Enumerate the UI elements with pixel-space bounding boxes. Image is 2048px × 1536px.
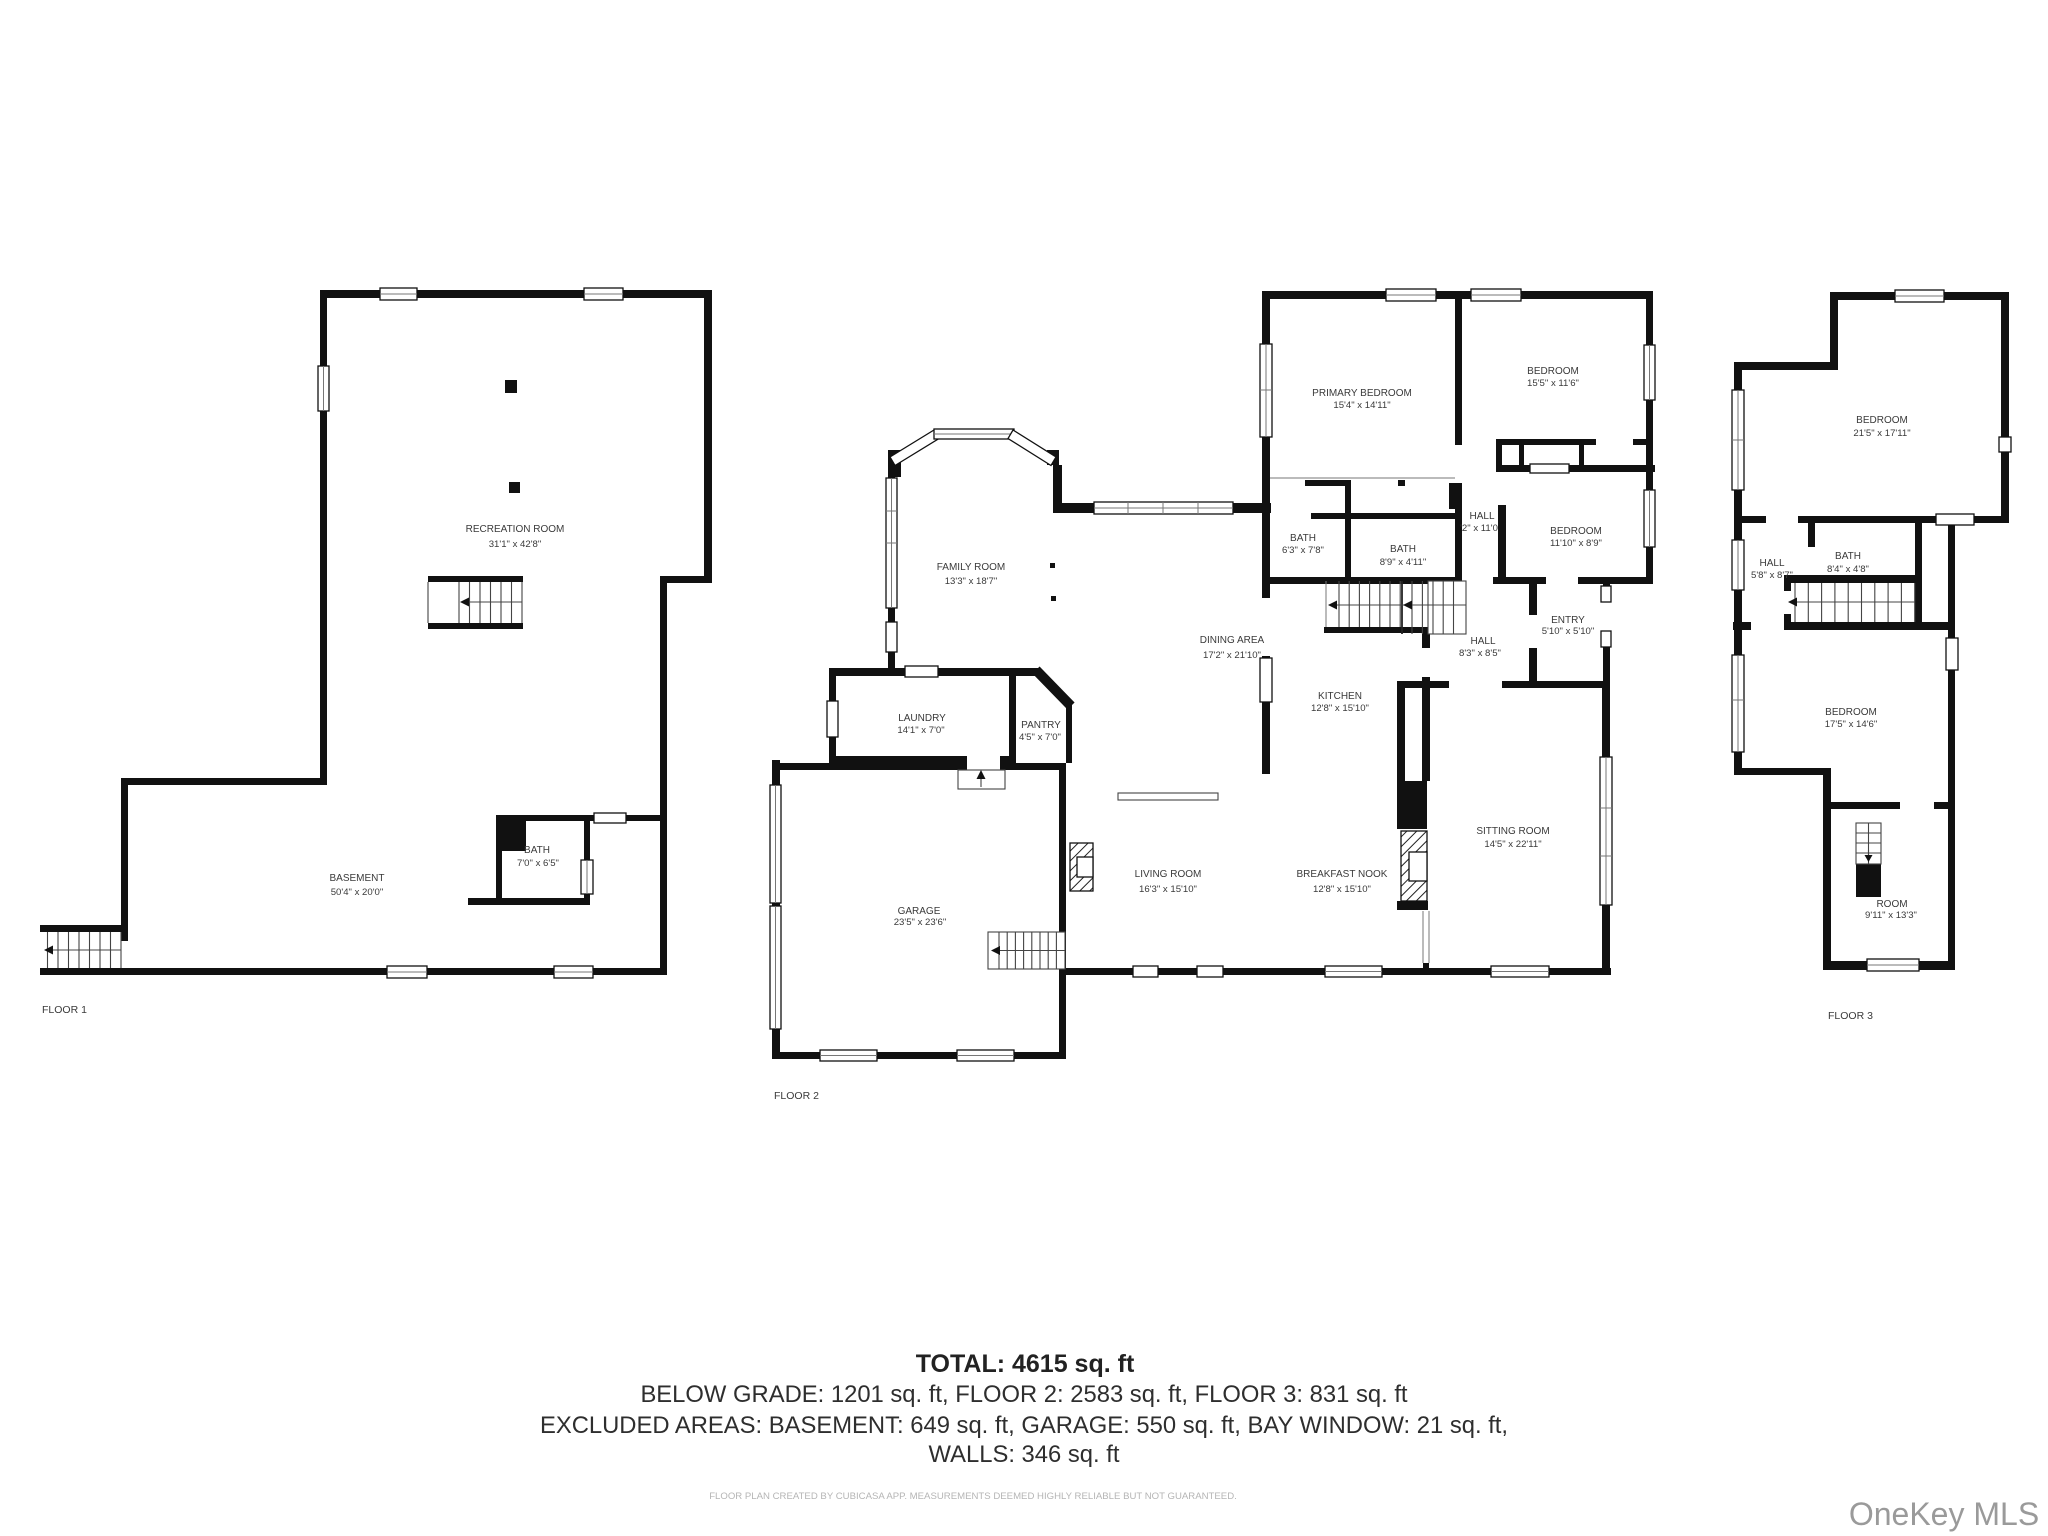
svg-text:HALL: HALL xyxy=(1759,558,1784,569)
svg-text:17'2" x 21'10": 17'2" x 21'10" xyxy=(1203,650,1261,661)
svg-text:'2" x 11'0: '2" x 11'0 xyxy=(1460,523,1498,534)
svg-text:FLOOR 2: FLOOR 2 xyxy=(774,1090,819,1102)
svg-text:DINING AREA: DINING AREA xyxy=(1200,635,1265,646)
svg-text:BEDROOM: BEDROOM xyxy=(1550,526,1602,537)
svg-text:LAUNDRY: LAUNDRY xyxy=(898,713,946,724)
svg-text:FLOOR 3: FLOOR 3 xyxy=(1828,1010,1873,1022)
svg-text:15'4" x 14'11": 15'4" x 14'11" xyxy=(1333,400,1390,411)
svg-text:23'5" x 23'6": 23'5" x 23'6" xyxy=(894,917,947,928)
svg-text:BEDROOM: BEDROOM xyxy=(1825,707,1877,718)
svg-text:BEDROOM: BEDROOM xyxy=(1856,415,1908,426)
svg-text:OneKey MLS: OneKey MLS xyxy=(1849,1496,2039,1532)
svg-text:FAMILY ROOM: FAMILY ROOM xyxy=(937,562,1006,573)
svg-text:BREAKFAST NOOK: BREAKFAST NOOK xyxy=(1297,869,1388,880)
svg-text:BELOW GRADE: 1201 sq. ft, FLOO: BELOW GRADE: 1201 sq. ft, FLOOR 2: 2583 … xyxy=(640,1381,1407,1408)
svg-text:15'5" x 11'6": 15'5" x 11'6" xyxy=(1527,378,1579,389)
svg-text:BEDROOM: BEDROOM xyxy=(1527,366,1579,377)
svg-text:8'3" x 8'5": 8'3" x 8'5" xyxy=(1459,648,1501,659)
svg-text:RECREATION ROOM: RECREATION ROOM xyxy=(466,524,565,535)
svg-text:ROOM: ROOM xyxy=(1876,899,1907,910)
svg-text:4'5" x 7'0": 4'5" x 7'0" xyxy=(1019,732,1061,743)
svg-text:12'8" x 15'10": 12'8" x 15'10" xyxy=(1313,884,1371,895)
svg-text:13'3" x 18'7": 13'3" x 18'7" xyxy=(945,576,998,587)
svg-text:BASEMENT: BASEMENT xyxy=(329,873,384,884)
svg-text:16'3" x 15'10": 16'3" x 15'10" xyxy=(1139,884,1197,895)
svg-text:9'11" x 13'3": 9'11" x 13'3" xyxy=(1865,910,1917,921)
svg-text:LIVING ROOM: LIVING ROOM xyxy=(1135,869,1202,880)
svg-text:5'10" x 5'10": 5'10" x 5'10" xyxy=(1542,626,1595,637)
svg-text:BATH: BATH xyxy=(1390,544,1416,555)
svg-text:FLOOR 1: FLOOR 1 xyxy=(42,1004,87,1016)
svg-text:BATH: BATH xyxy=(524,845,550,856)
svg-text:12'8" x 15'10": 12'8" x 15'10" xyxy=(1311,703,1369,714)
svg-text:14'5" x 22'11": 14'5" x 22'11" xyxy=(1484,839,1541,850)
svg-text:11'10" x 8'9": 11'10" x 8'9" xyxy=(1550,538,1602,549)
svg-text:BATH: BATH xyxy=(1290,533,1316,544)
svg-text:PRIMARY BEDROOM: PRIMARY BEDROOM xyxy=(1312,388,1412,399)
svg-text:KITCHEN: KITCHEN xyxy=(1318,691,1362,702)
svg-text:7'0" x 6'5": 7'0" x 6'5" xyxy=(517,858,559,869)
svg-text:FLOOR PLAN CREATED BY CUBICASA: FLOOR PLAN CREATED BY CUBICASA APP. MEAS… xyxy=(709,1491,1237,1502)
svg-text:6'3" x 7'8": 6'3" x 7'8" xyxy=(1282,545,1324,556)
svg-text:HALL: HALL xyxy=(1470,636,1495,647)
svg-text:HALL: HALL xyxy=(1469,511,1494,522)
svg-text:14'1" x 7'0": 14'1" x 7'0" xyxy=(897,725,944,736)
svg-text:50'4" x 20'0": 50'4" x 20'0" xyxy=(331,887,384,898)
svg-text:5'8" x 8'7": 5'8" x 8'7" xyxy=(1751,570,1793,581)
svg-text:BATH: BATH xyxy=(1835,551,1861,562)
svg-text:8'9" x 4'11": 8'9" x 4'11" xyxy=(1380,557,1427,568)
svg-text:WALLS: 346 sq. ft: WALLS: 346 sq. ft xyxy=(929,1441,1120,1468)
svg-text:17'5" x 14'6": 17'5" x 14'6" xyxy=(1825,719,1878,730)
svg-text:EXCLUDED AREAS: BASEMENT: 649: EXCLUDED AREAS: BASEMENT: 649 sq. ft, GA… xyxy=(540,1412,1508,1439)
svg-text:SITTING ROOM: SITTING ROOM xyxy=(1476,826,1549,837)
svg-text:8'4" x 4'8": 8'4" x 4'8" xyxy=(1827,564,1869,575)
svg-text:21'5" x 17'11": 21'5" x 17'11" xyxy=(1853,428,1910,439)
svg-text:31'1" x 42'8": 31'1" x 42'8" xyxy=(489,539,542,550)
svg-text:TOTAL: 4615 sq. ft: TOTAL: 4615 sq. ft xyxy=(916,1350,1135,1378)
svg-text:PANTRY: PANTRY xyxy=(1021,720,1061,731)
svg-text:ENTRY: ENTRY xyxy=(1551,615,1585,626)
svg-text:GARAGE: GARAGE xyxy=(898,906,941,917)
